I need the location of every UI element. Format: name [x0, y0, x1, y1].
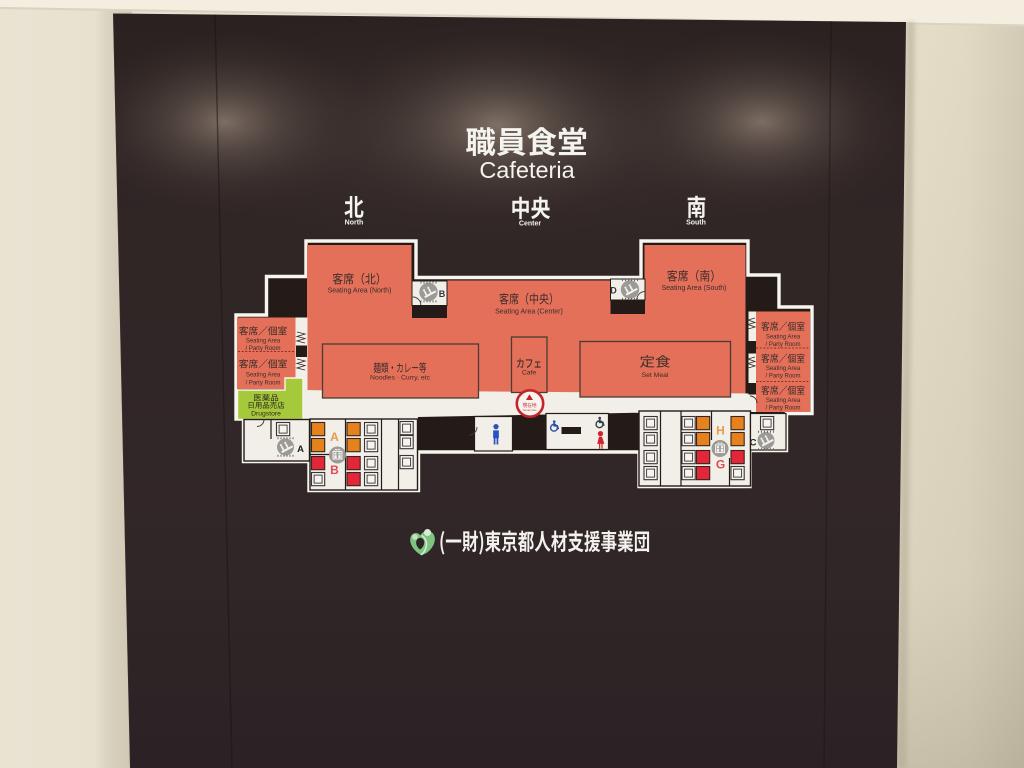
svg-text:Cafe: Cafe	[522, 370, 537, 377]
svg-text:/ Party Room: / Party Room	[765, 342, 800, 348]
svg-text:Seating Area (Center): Seating Area (Center)	[495, 309, 563, 316]
svg-text:North: North	[345, 220, 364, 227]
svg-text:Cafeteria: Cafeteria	[479, 157, 575, 183]
svg-text:G: G	[716, 458, 725, 472]
svg-text:Seating Area: Seating Area	[766, 366, 801, 372]
svg-text:/ Party Room: / Party Room	[245, 381, 280, 387]
svg-text:Seating Area: Seating Area	[766, 335, 801, 341]
svg-text:Center: Center	[519, 221, 541, 228]
svg-text:Seating Area: Seating Area	[766, 398, 801, 404]
svg-text:A: A	[297, 444, 304, 455]
svg-text:A: A	[330, 430, 339, 444]
svg-text:Drugstore: Drugstore	[251, 411, 281, 418]
svg-text:B: B	[330, 463, 339, 477]
svg-text:Set Meal: Set Meal	[642, 372, 669, 379]
svg-text:/ Party Room: / Party Room	[765, 374, 800, 380]
svg-text:Seating Area: Seating Area	[246, 373, 281, 379]
svg-text:Seating Area: Seating Area	[246, 339, 281, 345]
svg-text:You are here: You are here	[522, 409, 537, 412]
svg-text:C: C	[750, 438, 757, 449]
svg-text:Seating Area (North): Seating Area (North)	[328, 288, 392, 295]
svg-text:B: B	[439, 289, 446, 299]
svg-text:Seating Area (South): Seating Area (South)	[662, 285, 727, 292]
svg-text:D: D	[610, 286, 617, 296]
svg-text:/ Party Room: / Party Room	[765, 406, 800, 412]
svg-text:H: H	[716, 424, 725, 438]
svg-text:South: South	[686, 220, 706, 227]
svg-text:Noodles · Curry, etc: Noodles · Curry, etc	[370, 375, 431, 382]
